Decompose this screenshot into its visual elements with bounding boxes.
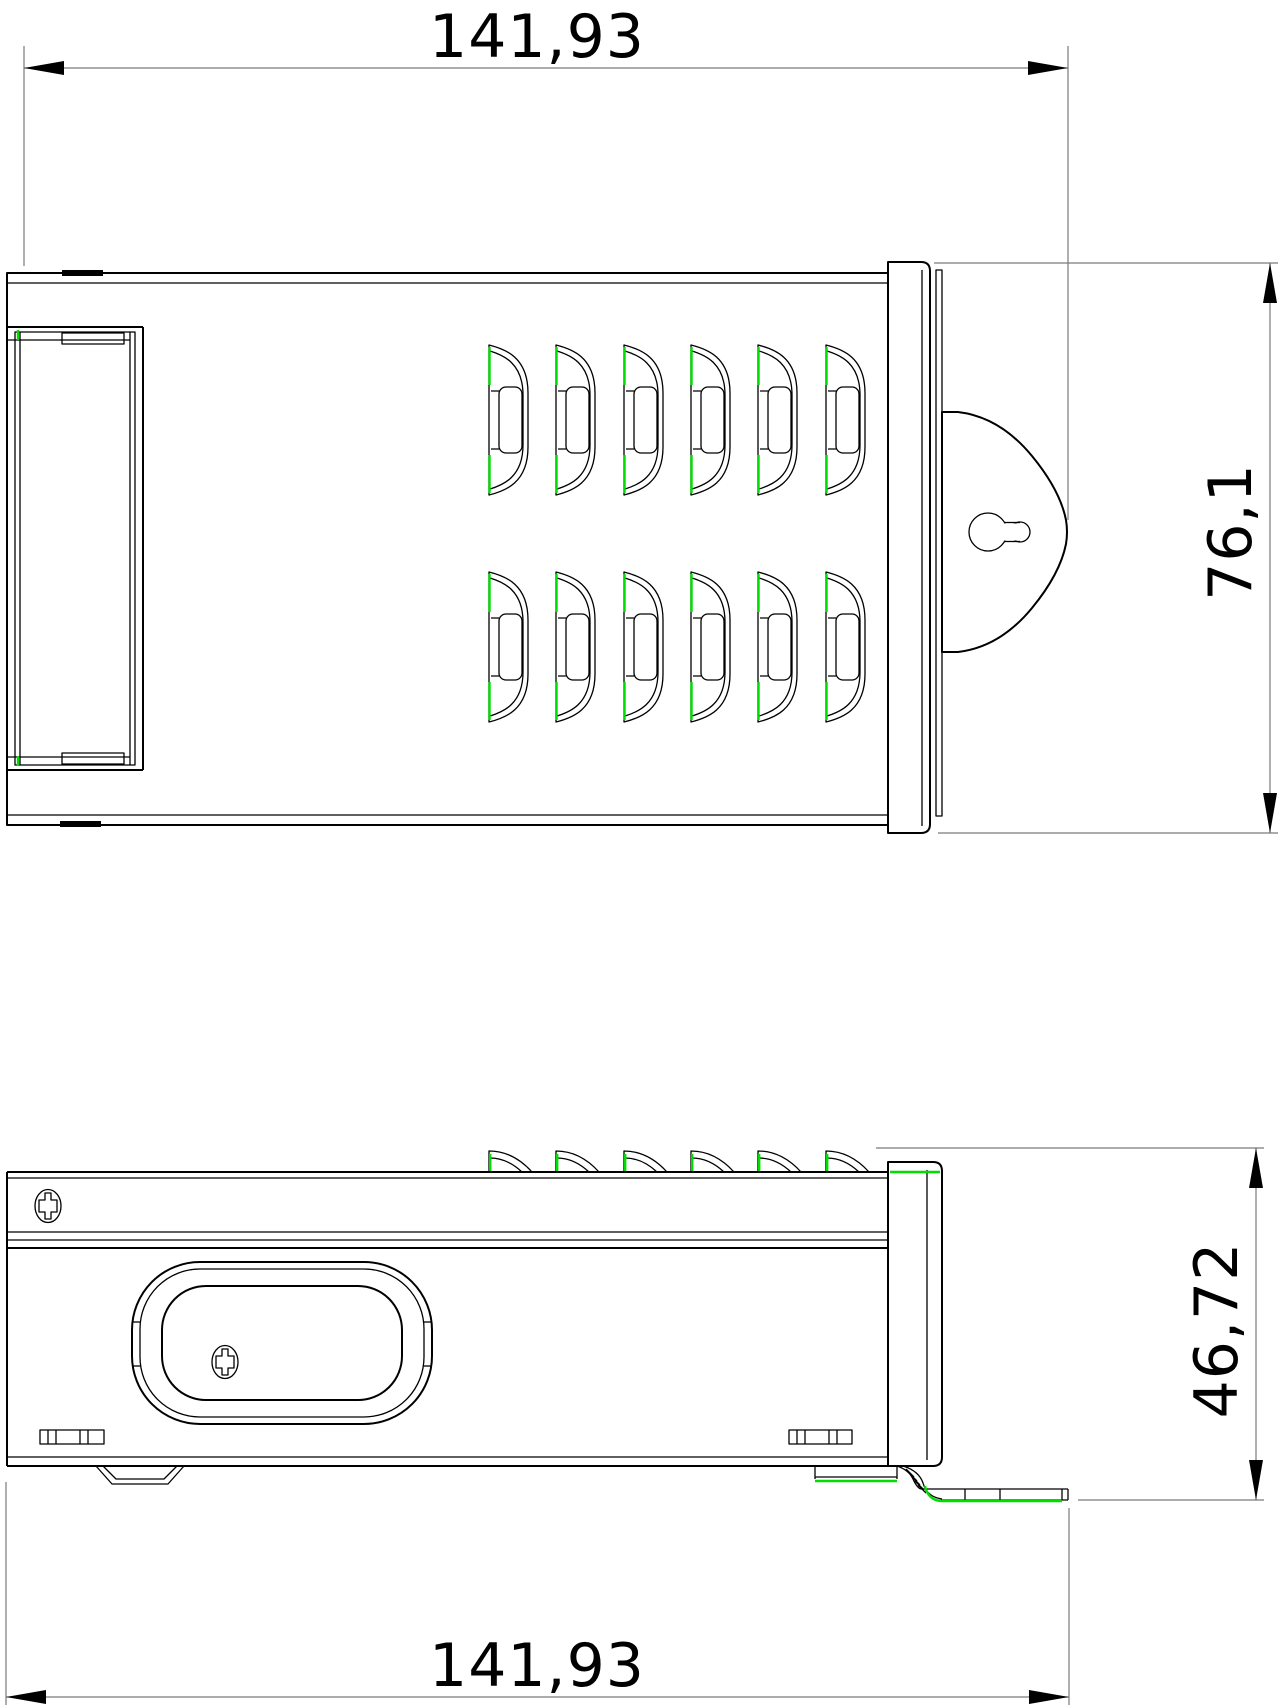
vent-opening: [499, 614, 522, 680]
vent-opening-stub: [693, 618, 701, 676]
vent-opening-stub: [558, 391, 566, 449]
louver-fin-outline: [826, 1151, 869, 1172]
louver-fin-inner-line: [490, 1158, 522, 1172]
top-view-end-cap: [888, 262, 930, 833]
vent-louver-inner-line: [692, 351, 725, 489]
arrowhead-left-icon: [6, 1690, 46, 1704]
vent-opening: [768, 387, 791, 453]
vent-opening-stub: [828, 618, 836, 676]
arrowhead-up-icon: [1263, 263, 1277, 303]
left-foot: [96, 1466, 184, 1484]
vent-opening: [499, 387, 522, 453]
vent-louver-inner-line: [557, 351, 590, 489]
dimension-label-overall-height: 76,1: [1196, 463, 1266, 601]
louver-fin-inner-line: [759, 1158, 791, 1172]
vent-opening: [836, 387, 859, 453]
louver-fin-inner-line: [827, 1158, 859, 1172]
vent-opening: [701, 614, 724, 680]
bottom-edge-tab-mark: [60, 821, 101, 827]
l-mounting-bracket: [897, 1466, 1068, 1501]
vent-opening-stub: [626, 391, 634, 449]
vent-opening: [566, 387, 589, 453]
drawing-sheet: 141,93 76,1 46,72 141,93: [0, 0, 1280, 1705]
vent-louver-inner-line: [625, 578, 658, 716]
bottom-slot-vent-right: [789, 1430, 852, 1444]
clip-top-tab: [62, 333, 124, 344]
louver-fin-inner-line: [692, 1158, 724, 1172]
vent-opening: [836, 614, 859, 680]
vent-louver-inner-line: [827, 578, 860, 716]
side-view-end-cap: [888, 1162, 942, 1466]
top-edge-tab-mark: [62, 270, 103, 276]
vent-opening-stub: [491, 618, 499, 676]
arrowhead-right-icon: [1028, 61, 1068, 75]
vent-louver-inner-line: [827, 351, 860, 489]
arrowhead-left-icon: [24, 61, 64, 75]
dimension-label-bottom-width: 141,93: [429, 1631, 645, 1701]
vent-opening-stub: [760, 618, 768, 676]
vent-opening-stub: [626, 618, 634, 676]
side-view: [7, 1151, 1068, 1501]
vent-opening: [768, 614, 791, 680]
vent-opening-stub: [693, 391, 701, 449]
side-view-body: [7, 1172, 888, 1466]
bottom-slot-vent-left: [40, 1430, 104, 1444]
oval-recess: [132, 1262, 432, 1424]
vent-opening: [634, 614, 657, 680]
vent-opening: [701, 387, 724, 453]
vent-opening: [634, 387, 657, 453]
top-view-vent-louvers: [489, 345, 865, 722]
vent-louver-inner-line: [490, 351, 523, 489]
louver-fin-outline: [691, 1151, 734, 1172]
drawing-canvas: 141,93 76,1 46,72 141,93: [0, 0, 1280, 1705]
vent-opening-stub: [828, 391, 836, 449]
vent-opening-stub: [491, 391, 499, 449]
vent-louver-inner-line: [625, 351, 658, 489]
louver-fin-outline: [624, 1151, 667, 1172]
arrowhead-right-icon: [1029, 1690, 1069, 1704]
louver-fin-outline: [758, 1151, 801, 1172]
top-view-left-clip-assembly: [7, 327, 143, 770]
louver-fin-outline: [556, 1151, 599, 1172]
dimension-bottom-width: 141,93: [6, 1482, 1069, 1705]
louver-fin-inner-line: [625, 1158, 657, 1172]
dimension-label-top-width: 141,93: [429, 2, 645, 72]
dimension-label-side-height: 46,72: [1182, 1242, 1252, 1419]
louver-fin-outline: [489, 1151, 532, 1172]
clip-bottom-tab: [62, 753, 124, 764]
vent-opening-stub: [558, 618, 566, 676]
cover-screw-icon: [212, 1346, 238, 1379]
vent-opening: [566, 614, 589, 680]
vent-louver-inner-line: [490, 578, 523, 716]
side-view-louver-fins: [489, 1151, 869, 1172]
vent-louver-inner-line: [692, 578, 725, 716]
top-view-body-outline: [7, 273, 888, 825]
chassis-screw-icon: [35, 1190, 61, 1223]
vent-louver-inner-line: [557, 578, 590, 716]
arrowhead-up-icon: [1249, 1148, 1263, 1188]
dimension-side-height: 46,72: [876, 1148, 1264, 1500]
arrowhead-down-icon: [1263, 793, 1277, 833]
base-step: [815, 1466, 897, 1481]
louver-fin-inner-line: [557, 1158, 589, 1172]
vent-louver-inner-line: [759, 351, 792, 489]
vent-louver-inner-line: [759, 578, 792, 716]
keyhole-slot: [969, 513, 1030, 551]
vent-opening-stub: [760, 391, 768, 449]
top-view: [7, 262, 1067, 833]
arrowhead-down-icon: [1249, 1460, 1263, 1500]
